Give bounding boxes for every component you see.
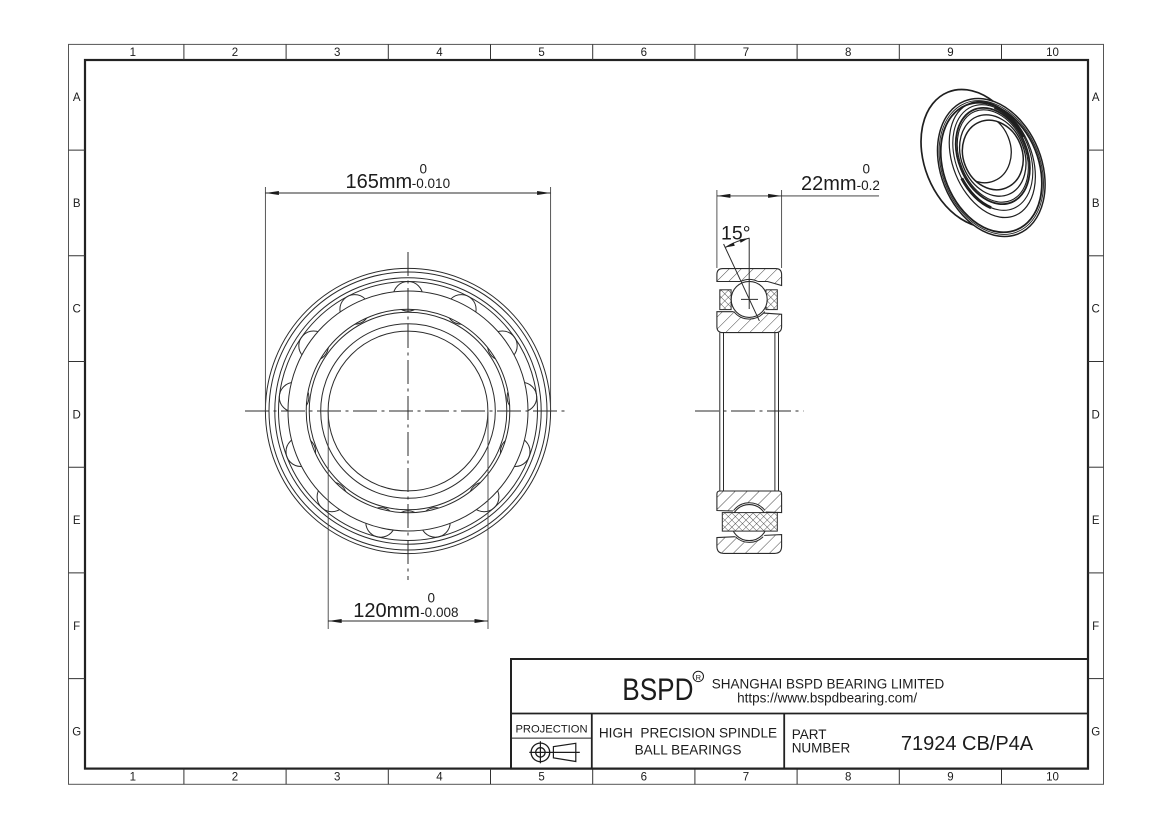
svg-text:4: 4 [436,771,443,783]
svg-text:6: 6 [641,771,647,783]
svg-text:1: 1 [130,771,136,783]
svg-text:R: R [696,673,702,682]
svg-text:3: 3 [334,771,340,783]
svg-text:2: 2 [232,771,238,783]
svg-text:7: 7 [743,47,749,59]
svg-text:2: 2 [232,47,238,59]
svg-text:0: 0 [428,591,436,606]
svg-text:0: 0 [420,162,428,177]
svg-text:D: D [1092,409,1100,421]
svg-text:-0.008: -0.008 [420,605,458,620]
svg-text:22mm: 22mm [801,173,857,195]
svg-text:B: B [73,198,81,210]
svg-text:10: 10 [1046,47,1059,59]
svg-text:G: G [72,727,81,739]
svg-text:B: B [1092,198,1100,210]
svg-text:E: E [73,515,81,527]
svg-text:10: 10 [1046,771,1059,783]
svg-text:120mm: 120mm [353,600,420,622]
svg-text:-0.2: -0.2 [857,178,880,193]
svg-text:165mm: 165mm [346,171,413,193]
svg-text:4: 4 [436,47,443,59]
svg-text:15°: 15° [721,223,751,245]
svg-text:5: 5 [538,771,544,783]
svg-text:1: 1 [130,47,136,59]
svg-text:D: D [73,409,81,421]
svg-text:6: 6 [641,47,647,59]
svg-text:https://www.bspdbearing.com/: https://www.bspdbearing.com/ [737,690,917,705]
svg-text:C: C [1092,304,1100,316]
svg-text:71924 CB/P4A: 71924 CB/P4A [901,733,1034,755]
svg-text:0: 0 [863,162,871,177]
svg-text:9: 9 [947,47,953,59]
svg-text:NUMBER: NUMBER [792,741,851,756]
svg-text:PROJECTION: PROJECTION [515,723,587,735]
svg-text:HIGH PRECISION SPINDLE: HIGH PRECISION SPINDLE [599,725,777,740]
svg-text:9: 9 [947,771,953,783]
svg-text:7: 7 [743,771,749,783]
svg-text:F: F [1092,621,1099,633]
svg-text:E: E [1092,515,1100,527]
svg-text:A: A [73,92,81,104]
svg-text:F: F [73,621,80,633]
svg-text:BALL BEARINGS: BALL BEARINGS [635,742,742,757]
svg-text:-0.010: -0.010 [412,176,450,191]
svg-text:8: 8 [845,771,851,783]
svg-text:8: 8 [845,47,851,59]
svg-text:A: A [1092,92,1100,104]
svg-text:3: 3 [334,47,340,59]
svg-text:BSPD: BSPD [622,673,693,708]
svg-text:C: C [73,304,81,316]
svg-text:5: 5 [538,47,544,59]
svg-text:G: G [1091,727,1100,739]
